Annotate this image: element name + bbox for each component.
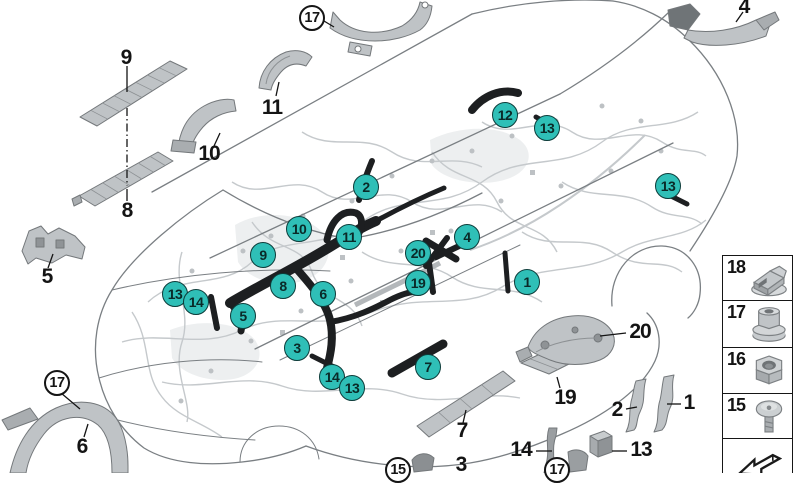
part-label-11: 11	[262, 96, 282, 120]
fastener-box-18[interactable]: 18	[722, 255, 793, 302]
hotspot-callout-13[interactable]: 13	[534, 115, 560, 141]
hotspot-callout-2[interactable]: 2	[353, 174, 379, 200]
fastener-box-label: 17	[727, 302, 745, 323]
ref-callout-17: 17	[44, 370, 70, 396]
part-label-5: 5	[42, 265, 53, 289]
hotspot-callout-13[interactable]: 13	[655, 173, 681, 199]
hotspot-callout-19[interactable]: 19	[405, 270, 431, 296]
hotspot-callout-12[interactable]: 12	[492, 102, 518, 128]
part-label-10: 10	[198, 142, 219, 166]
ref-callout-15: 15	[385, 457, 411, 483]
part-label-6: 6	[77, 435, 88, 459]
hotspot-callout-9[interactable]: 9	[250, 242, 276, 268]
ref-callout-17: 17	[299, 5, 325, 31]
flange-nut-icon	[746, 304, 792, 344]
hotspot-callout-7[interactable]: 7	[415, 354, 441, 380]
part-label-8: 8	[122, 199, 133, 223]
fastener-box-15[interactable]: 15	[722, 393, 793, 440]
hex-nut-icon	[746, 351, 792, 391]
fastener-box-16[interactable]: 16	[722, 347, 793, 395]
hotspot-callout-5[interactable]: 5	[230, 303, 256, 329]
hotspot-callout-3[interactable]: 3	[284, 335, 310, 361]
hotspot-callout-4[interactable]: 4	[454, 224, 480, 250]
part-label-20: 20	[629, 320, 650, 344]
hotspot-callout-1[interactable]: 1	[514, 269, 540, 295]
hotspot-callout-14[interactable]: 14	[183, 289, 209, 315]
fastener-box-label: 15	[727, 395, 745, 416]
fastener-box-label: 18	[727, 257, 745, 278]
part-label-1: 1	[684, 391, 695, 415]
part-label-7: 7	[457, 419, 468, 443]
direction-arrow-icon	[736, 442, 782, 473]
fastener-legend: 18171615	[722, 255, 793, 473]
fastener-box-label: 16	[727, 349, 745, 370]
ref-callout-17: 17	[544, 457, 570, 483]
hotspot-callout-8[interactable]: 8	[270, 273, 296, 299]
fastener-box-17[interactable]: 17	[722, 300, 793, 348]
hotspot-callout-13[interactable]: 13	[339, 375, 365, 401]
part-label-2: 2	[612, 398, 623, 422]
part-label-9: 9	[121, 46, 132, 70]
part-label-13: 13	[630, 438, 651, 462]
hotspot-callout-11[interactable]: 11	[336, 224, 362, 250]
part-label-14: 14	[510, 438, 531, 462]
part-label-19: 19	[554, 386, 575, 410]
callout-layer: 1213213101142091918613145371413171715179…	[0, 0, 800, 473]
cable-clip-icon	[746, 259, 792, 299]
fastener-box-direction-arrow-icon[interactable]	[722, 438, 793, 473]
hotspot-callout-20[interactable]: 20	[405, 240, 431, 266]
screw-icon	[746, 397, 792, 437]
hotspot-callout-10[interactable]: 10	[286, 216, 312, 242]
part-label-4: 4	[739, 0, 750, 19]
hotspot-callout-6[interactable]: 6	[310, 281, 336, 307]
part-label-3: 3	[456, 453, 467, 477]
